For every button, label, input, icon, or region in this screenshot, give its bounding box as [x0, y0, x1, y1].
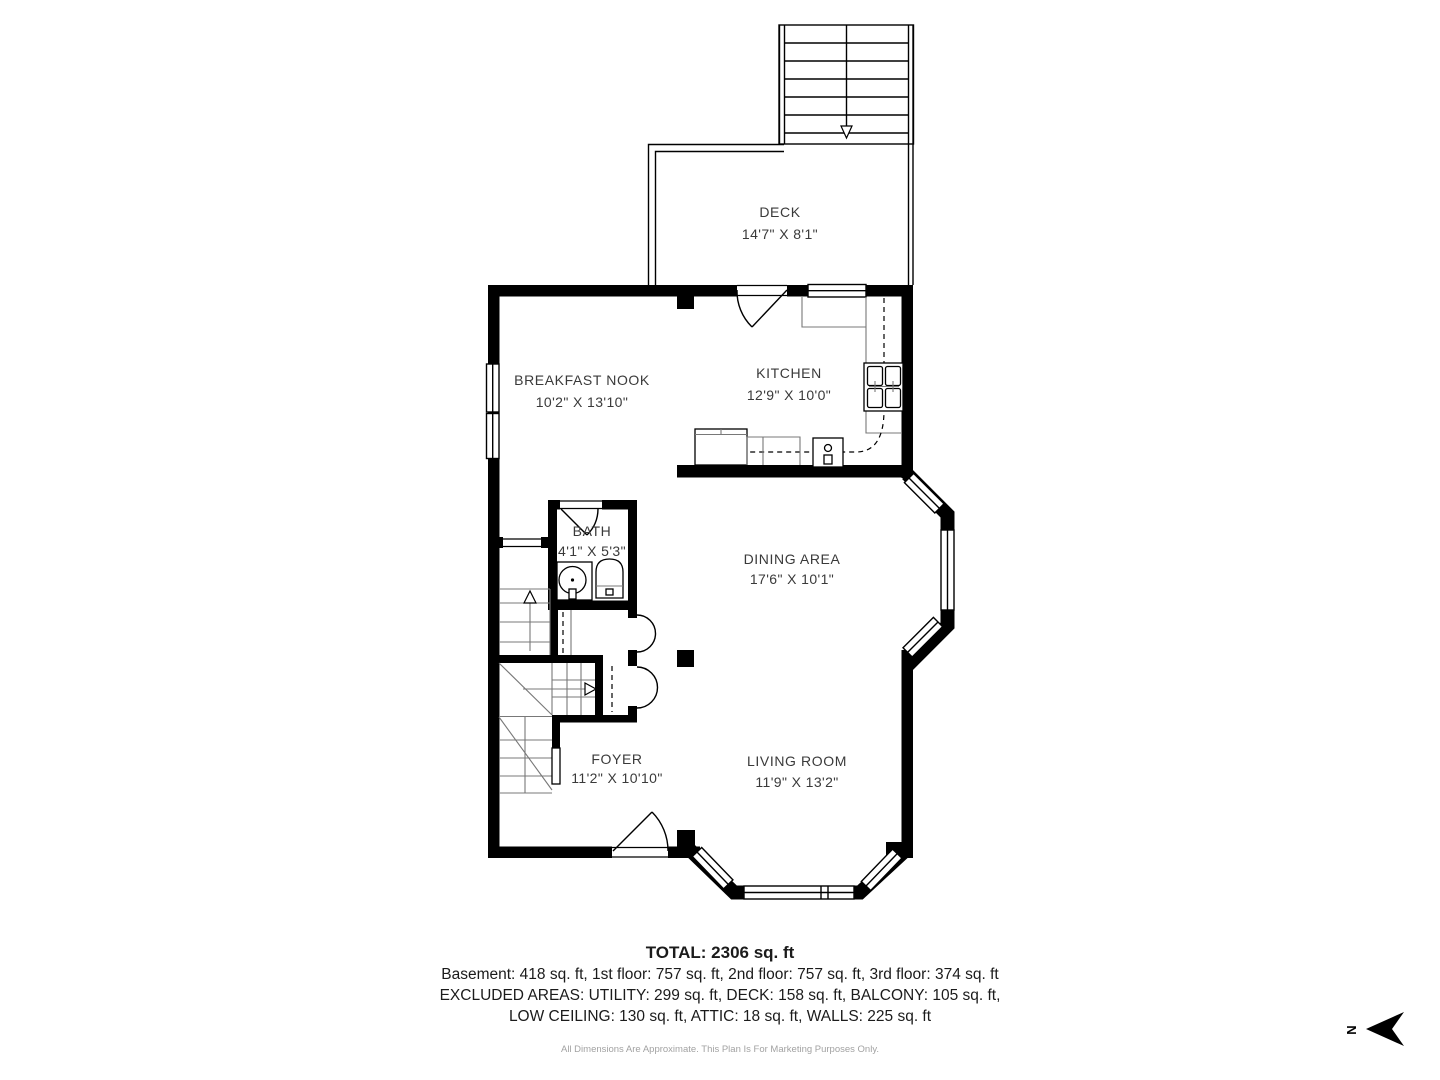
wall-right-living: [902, 650, 914, 855]
wall-pillar-foyer-living: [677, 830, 695, 858]
room-label-breakfast-nook: BREAKFAST NOOK 10'2" X 13'10": [514, 372, 650, 410]
wall-tick-right: [541, 537, 550, 548]
room-label-deck: DECK 14'7" X 8'1": [742, 204, 818, 242]
sink-icon: [813, 438, 843, 467]
room-name: LIVING ROOM: [747, 753, 847, 769]
room-dims: 11'9" X 13'2": [755, 774, 838, 790]
wall-kitchen-bottom: [677, 465, 905, 478]
wall-closet-right-b: [628, 650, 637, 666]
wall-tick-left: [494, 537, 503, 548]
room-dims: 14'7" X 8'1": [742, 226, 818, 242]
room-name: BREAKFAST NOOK: [514, 372, 650, 388]
vanity-sink-icon: [557, 562, 592, 600]
excluded-areas-line1: EXCLUDED AREAS: UTILITY: 299 sq. ft, DEC…: [0, 985, 1440, 1006]
wall-bath-bottom: [548, 601, 637, 611]
stair-railing: [552, 748, 560, 784]
wall-hall: [494, 655, 603, 663]
front-door: [612, 812, 668, 859]
room-name: KITCHEN: [756, 365, 822, 381]
kitchen-fixtures: [695, 297, 903, 467]
closet-upper: [563, 610, 656, 655]
stairs-lower-icon: [499, 716, 560, 793]
wall-closet-right-c: [628, 706, 637, 722]
disclaimer: All Dimensions Are Approximate. This Pla…: [0, 1044, 1440, 1055]
wall-closet-divider: [595, 663, 603, 722]
bath-fixtures: [557, 559, 623, 600]
room-name: FOYER: [591, 751, 642, 767]
window: [941, 530, 954, 610]
room-dims: 11'2" X 10'10": [571, 770, 662, 786]
deck-stairs-icon: [779, 25, 914, 144]
room-name: DINING AREA: [744, 551, 841, 567]
closet-door-arc: [637, 667, 658, 708]
floor-plan-page: { "plan": { "rooms": [ {"name": "DECK", …: [0, 0, 1440, 1080]
floor-plan: DECK 14'7" X 8'1" BREAKFAST NOOK 10'2" X…: [0, 0, 1440, 1080]
wall-closet-left: [550, 610, 558, 656]
counter-edge: [802, 297, 866, 327]
room-name: DECK: [759, 204, 800, 220]
door-swing-arc: [652, 812, 668, 851]
room-name: BATH: [573, 523, 612, 539]
room-label-dining-area: DINING AREA 17'6" X 10'1": [744, 551, 841, 587]
wall-stair-stub: [552, 715, 560, 748]
room-dims: 4'1" X 5'3": [558, 543, 626, 559]
stove-icon: [864, 363, 903, 411]
window: [487, 414, 500, 459]
deck-door: [737, 284, 787, 327]
fridge-icon: [695, 429, 747, 465]
wall-closet-right-a: [628, 610, 637, 618]
room-dims: 12'9" X 10'0": [747, 387, 831, 403]
wall-bath-left: [548, 500, 557, 610]
closet-door-arc: [637, 615, 656, 652]
toilet-icon: [596, 559, 623, 598]
window: [808, 285, 866, 298]
room-label-bath: BATH 4'1" X 5'3": [558, 523, 626, 559]
stairs-up-icon: [499, 589, 550, 655]
room-label-kitchen: KITCHEN 12'9" X 10'0": [747, 365, 831, 403]
area-summary: TOTAL: 2306 sq. ft Basement: 418 sq. ft,…: [0, 941, 1440, 1055]
room-dims: 17'6" X 10'1": [750, 571, 834, 587]
door-leaf: [613, 812, 652, 851]
closet-lower: [612, 666, 658, 712]
room-dims: 10'2" X 13'10": [536, 394, 629, 410]
window: [744, 886, 854, 899]
stairs-right-arrow-icon: [585, 683, 596, 695]
window: [692, 847, 733, 888]
window: [904, 473, 944, 513]
wall-pillar-nook-kitchen: [677, 296, 694, 309]
floor-areas: Basement: 418 sq. ft, 1st floor: 757 sq.…: [0, 964, 1440, 985]
room-label-foyer: FOYER 11'2" X 10'10": [571, 751, 662, 786]
wall-closet-bottom: [556, 715, 637, 723]
cased-opening: [503, 537, 541, 549]
wall-pillar-dining-living: [677, 650, 694, 667]
stairs-winder-icon: [499, 663, 596, 715]
total-area: TOTAL: 2306 sq. ft: [0, 941, 1440, 964]
window: [487, 364, 500, 412]
stairs-up-arrow-icon: [524, 591, 536, 603]
wall-bath-right: [628, 500, 637, 610]
counter: [747, 437, 800, 465]
room-label-living-room: LIVING ROOM 11'9" X 13'2": [747, 753, 847, 790]
excluded-areas-line2: LOW CEILING: 130 sq. ft, ATTIC: 18 sq. f…: [0, 1006, 1440, 1027]
window: [861, 849, 902, 890]
